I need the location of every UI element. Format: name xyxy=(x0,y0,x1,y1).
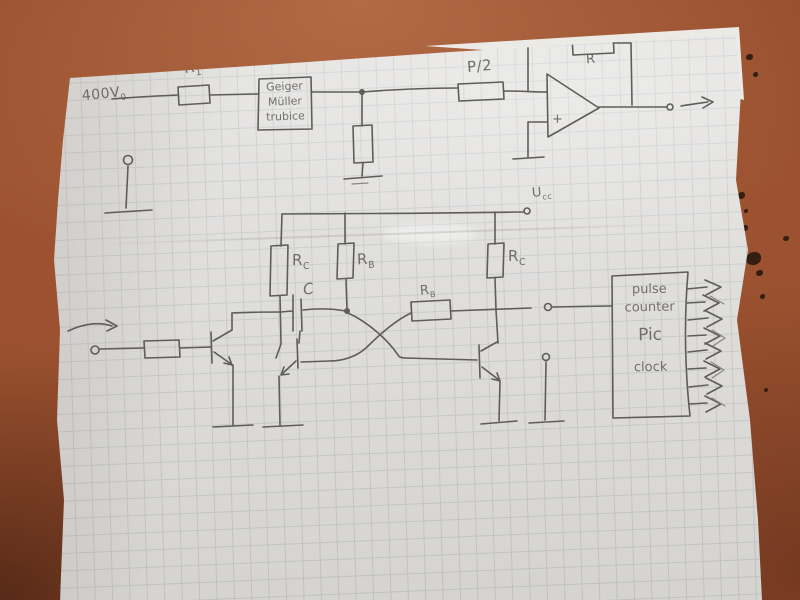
label-rb-cross: RB xyxy=(419,282,436,300)
resistor-rb-mid xyxy=(337,243,354,310)
input-arrow xyxy=(68,320,117,331)
opamp xyxy=(513,42,632,159)
label-rb-mid: RB xyxy=(356,250,375,272)
resistor-r1 xyxy=(178,85,259,105)
capacitor-c xyxy=(281,295,346,331)
photo-of-hand-drawn-circuit: 400V0 R1 Geiger Müller trubice P/2 R + U… xyxy=(0,0,800,600)
transistor-t1 xyxy=(211,312,281,427)
label-opamp-plus: + xyxy=(552,112,563,127)
resistor-p2 xyxy=(458,82,547,101)
cross-coupling-wires xyxy=(301,313,477,362)
pulldown-resistor-and-ground xyxy=(344,94,382,184)
opamp-output xyxy=(599,97,713,110)
label-p2: P/2 xyxy=(466,56,493,76)
label-ucc: Ucc xyxy=(531,184,552,202)
ground-terminal-mid xyxy=(529,354,564,424)
label-geiger-tube: Geiger Müller trubice xyxy=(257,79,313,125)
pulse-counter-pins xyxy=(687,280,725,412)
resistor-rc-left xyxy=(270,245,288,358)
label-rc-right: RC xyxy=(508,247,526,268)
resistor-rc-right xyxy=(487,243,504,343)
wire-to-p2 xyxy=(362,88,458,92)
output-terminal xyxy=(545,304,613,311)
label-pulse-counter: pulse counter Pic clock xyxy=(613,280,687,377)
ucc-rail xyxy=(281,208,530,246)
resistor-rb-cross xyxy=(411,300,531,321)
squared-paper-sheet: 400V0 R1 Geiger Müller trubice P/2 R + U… xyxy=(0,0,800,600)
input-terminal-and-resistor xyxy=(91,340,211,358)
transistor-t3 xyxy=(479,342,517,424)
label-rc-left: RC xyxy=(292,251,310,272)
ground-terminal-left xyxy=(105,156,152,214)
transistor-t2 xyxy=(263,331,303,427)
label-feedback-r: R xyxy=(585,52,596,68)
